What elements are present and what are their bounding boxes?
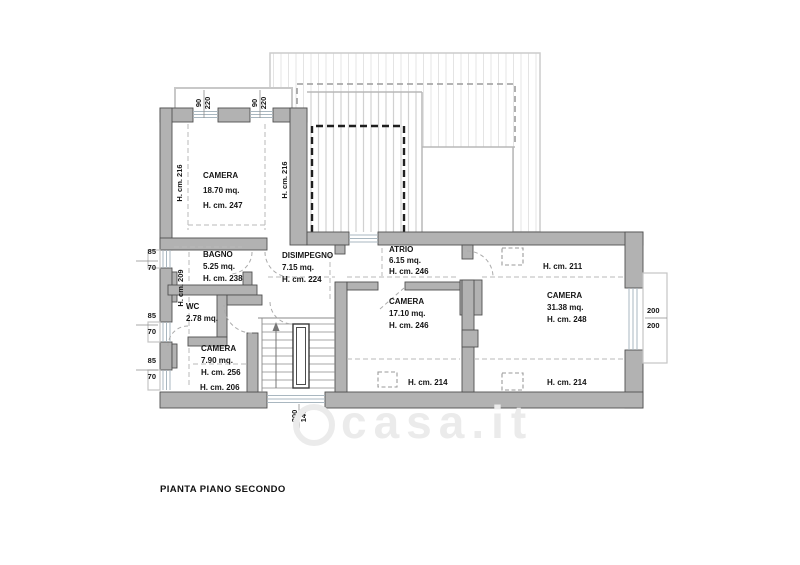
room-height: H. cm. 238	[203, 273, 243, 285]
dim-top-window2-height: 220	[260, 93, 268, 113]
dim-right-window-width: 200	[647, 307, 671, 315]
room-label-camera2: CAMERA 7.90 mq. H. cm. 256	[201, 343, 241, 379]
room-height-low: H. cm. 206	[200, 382, 240, 394]
dim-top-window2-width: 90	[251, 93, 259, 113]
room-label-camera4-top: H. cm. 211	[543, 261, 582, 273]
room-label-wc: WC 2.78 mq.	[186, 301, 218, 325]
dim-left-window3-width: 85	[136, 357, 156, 365]
room-label-atrio: ATRIO 6.15 mq. H. cm. 246	[389, 244, 429, 277]
dim-right-window-height: 200	[647, 322, 671, 330]
dim-left-window2-height: 70	[136, 328, 156, 336]
room-height: H. cm. 248	[547, 314, 587, 326]
dim-left-window1-height: 70	[136, 264, 156, 272]
room-height: H. cm. 224	[282, 274, 333, 286]
dim-top-window1-height: 220	[204, 93, 212, 113]
room-label-camera2-low: H. cm. 206	[200, 382, 240, 394]
room-area: 7.90 mq.	[201, 355, 241, 367]
wall-height-wc: H. cm. 209	[176, 268, 186, 308]
room-height-low: H. cm. 214	[547, 377, 587, 389]
room-height: H. cm. 246	[389, 320, 429, 332]
room-name: BAGNO	[203, 249, 243, 261]
room-name: DISIMPEGNO	[282, 250, 333, 262]
room-area: 17.10 mq.	[389, 308, 429, 320]
wall-height-left: H. cm. 216	[175, 163, 185, 203]
floorplan-drawing	[0, 0, 800, 565]
room-name: WC	[186, 301, 218, 313]
room-height-low: H. cm. 214	[408, 377, 448, 389]
room-label-camera3: CAMERA 17.10 mq. H. cm. 246	[389, 296, 429, 332]
room-area: 2.78 mq.	[186, 313, 218, 325]
room-area: 6.15 mq.	[389, 255, 429, 266]
room-name: CAMERA	[201, 343, 241, 355]
stair-stringer	[293, 324, 309, 388]
room-name: CAMERA	[203, 168, 243, 183]
room-height: H. cm. 247	[203, 198, 243, 213]
room-area: 31.38 mq.	[547, 302, 587, 314]
dim-left-window2-width: 85	[136, 312, 156, 320]
room-name: CAMERA	[547, 290, 587, 302]
dim-left-window1-width: 85	[136, 248, 156, 256]
room-label-disimpegno: DISIMPEGNO 7.15 mq. H. cm. 224	[282, 250, 333, 286]
room-label-camera4-low: H. cm. 214	[547, 377, 587, 389]
room-height: H. cm. 246	[389, 266, 429, 277]
wall-height-right: H. cm. 216	[280, 160, 290, 200]
watermark-logo-icon	[293, 404, 335, 446]
room-label-camera3-low: H. cm. 214	[408, 377, 448, 389]
dim-top-window1-width: 90	[195, 93, 203, 113]
room-label-bagno: BAGNO 5.25 mq. H. cm. 238	[203, 249, 243, 285]
watermark: casa.it	[293, 394, 533, 450]
room-label-camera1: CAMERA 18.70 mq. H. cm. 247	[203, 168, 243, 213]
room-height-top: H. cm. 211	[543, 261, 582, 273]
room-area: 5.25 mq.	[203, 261, 243, 273]
room-name: CAMERA	[389, 296, 429, 308]
dim-left-window3-height: 70	[136, 373, 156, 381]
room-label-camera4: CAMERA 31.38 mq. H. cm. 248	[547, 290, 587, 326]
plan-title: PIANTA PIANO SECONDO	[160, 484, 286, 495]
watermark-text: casa.it	[341, 394, 533, 450]
room-area: 18.70 mq.	[203, 183, 243, 198]
room-name: ATRIO	[389, 244, 429, 255]
room-height: H. cm. 256	[201, 367, 241, 379]
room-area: 7.15 mq.	[282, 262, 333, 274]
floorplan-canvas: CAMERA 18.70 mq. H. cm. 247 BAGNO 5.25 m…	[0, 0, 800, 565]
